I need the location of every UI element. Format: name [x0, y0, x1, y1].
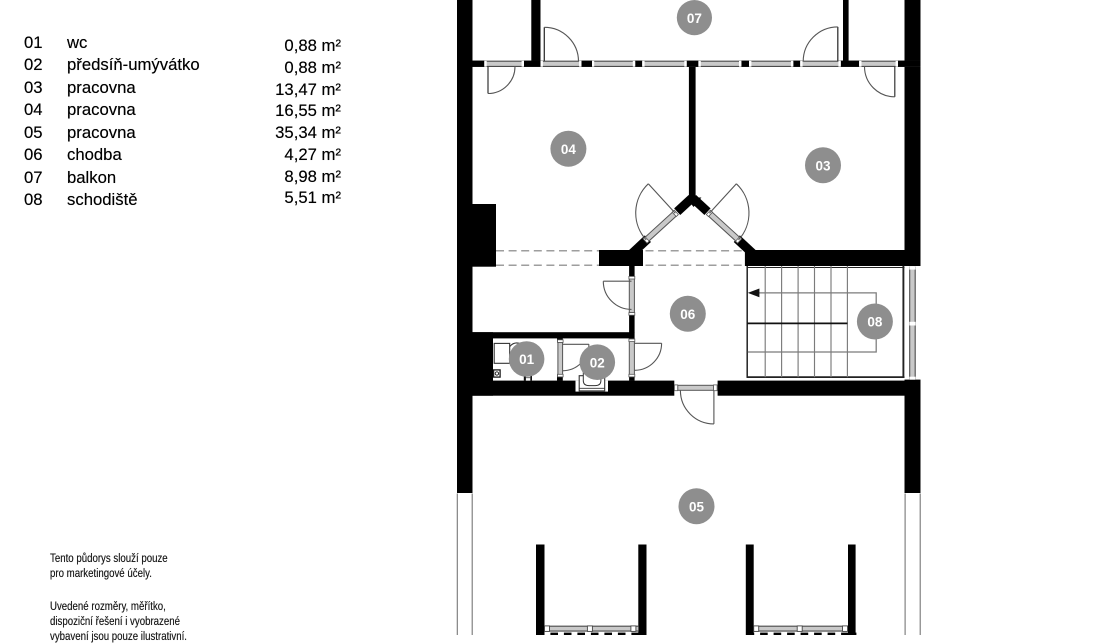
svg-text:01: 01 [519, 352, 535, 367]
svg-text:05: 05 [689, 499, 705, 514]
svg-text:06: 06 [680, 307, 696, 322]
svg-text:04: 04 [561, 142, 577, 157]
svg-text:03: 03 [815, 158, 831, 173]
svg-text:08: 08 [867, 315, 883, 330]
svg-text:07: 07 [687, 11, 702, 26]
svg-text:02: 02 [590, 355, 605, 370]
